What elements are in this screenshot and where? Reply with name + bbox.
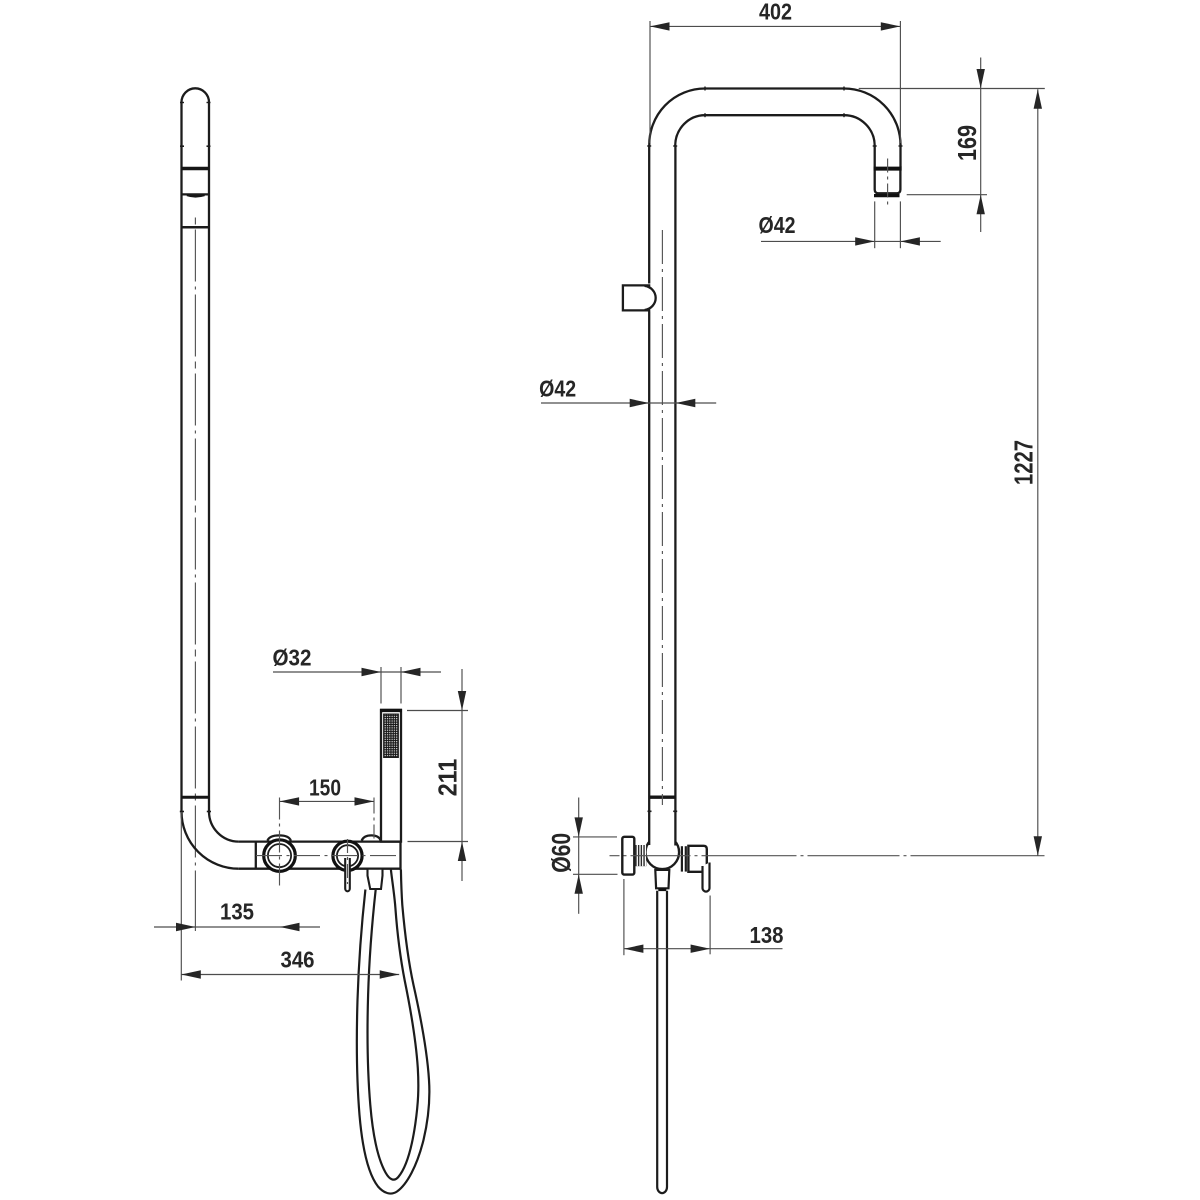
svg-text:Ø32: Ø32 [273, 645, 312, 671]
svg-text:Ø60: Ø60 [548, 833, 576, 873]
svg-text:346: 346 [281, 947, 315, 973]
svg-text:138: 138 [750, 922, 784, 948]
svg-text:150: 150 [309, 774, 341, 800]
svg-text:Ø42: Ø42 [759, 212, 796, 238]
svg-text:169: 169 [954, 125, 982, 161]
svg-text:402: 402 [759, 0, 792, 25]
svg-text:211: 211 [435, 759, 463, 797]
svg-text:Ø42: Ø42 [539, 375, 576, 401]
svg-text:1227: 1227 [1011, 440, 1039, 485]
svg-text:135: 135 [220, 899, 254, 925]
